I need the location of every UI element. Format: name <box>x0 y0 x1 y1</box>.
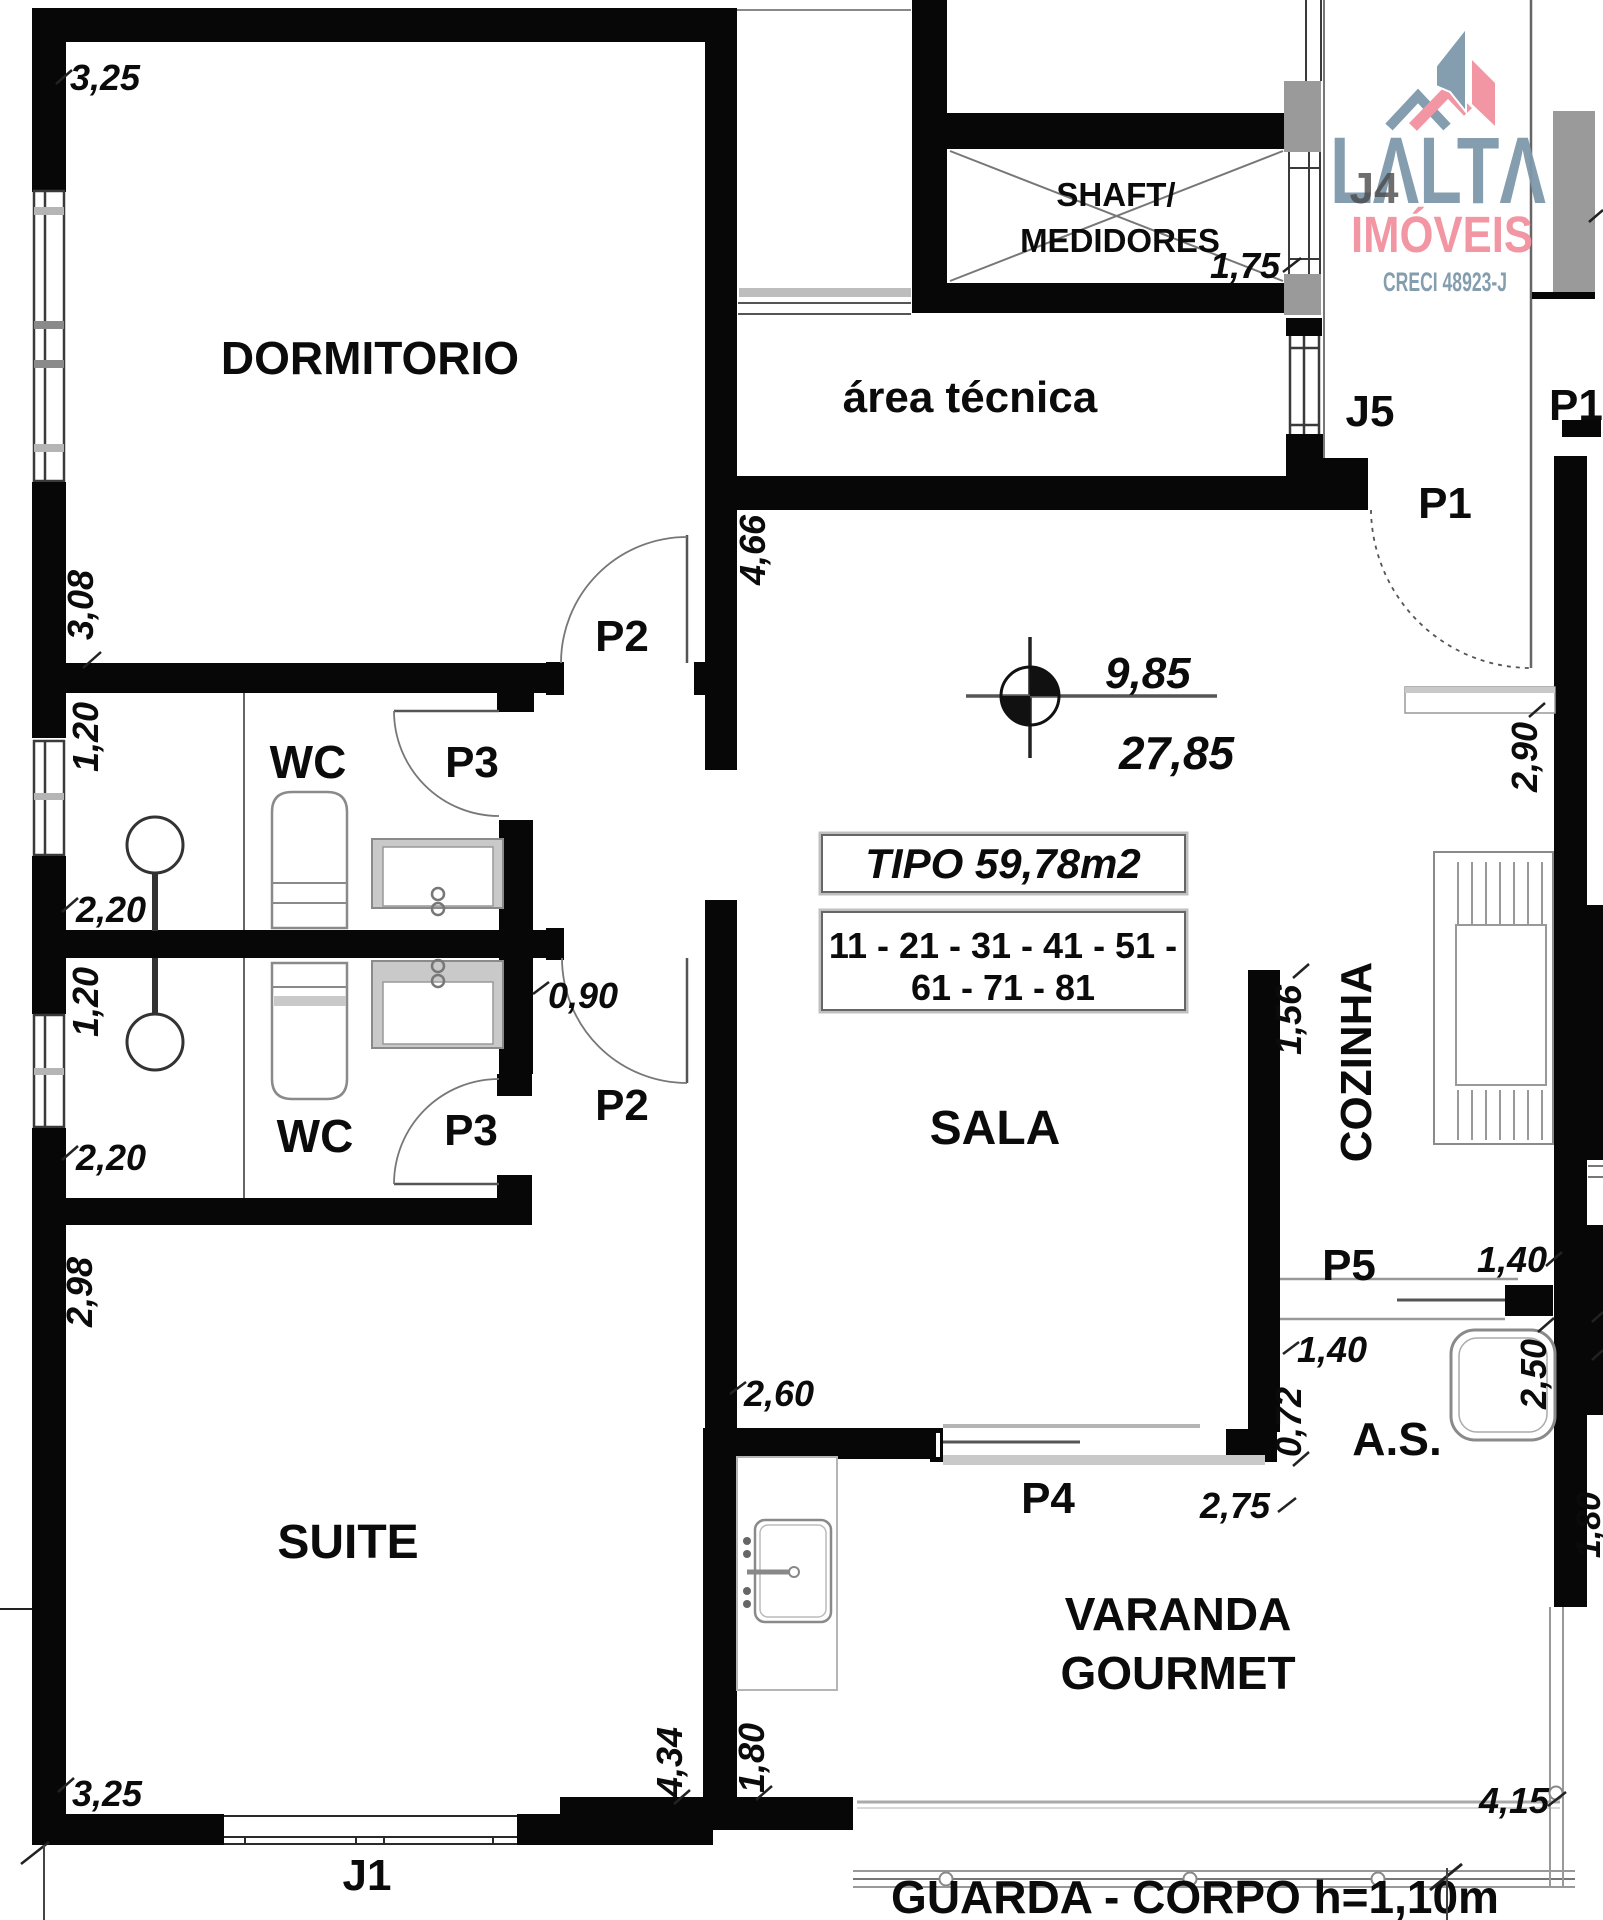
svg-text:WC: WC <box>277 1110 354 1162</box>
svg-text:11 - 21 - 31 - 41 - 51 -: 11 - 21 - 31 - 41 - 51 - <box>829 925 1177 966</box>
svg-text:P3: P3 <box>445 738 499 787</box>
svg-text:1,80: 1,80 <box>731 1723 772 1793</box>
svg-text:MEDIDORES: MEDIDORES <box>1020 222 1220 259</box>
svg-text:CRECI 48923-J: CRECI 48923-J <box>1383 267 1507 297</box>
svg-text:2,20: 2,20 <box>75 889 146 930</box>
svg-text:J4: J4 <box>1350 164 1399 213</box>
svg-text:P4: P4 <box>1021 1474 1075 1523</box>
svg-text:2,90: 2,90 <box>1504 722 1545 793</box>
svg-text:61 - 71 - 81: 61 - 71 - 81 <box>911 967 1095 1008</box>
svg-text:SALA: SALA <box>930 1102 1061 1155</box>
svg-text:3,25: 3,25 <box>72 1773 143 1814</box>
svg-text:P3: P3 <box>444 1106 498 1155</box>
svg-text:SUITE: SUITE <box>277 1516 418 1569</box>
svg-text:P5: P5 <box>1322 1241 1376 1290</box>
svg-text:J5: J5 <box>1346 387 1395 436</box>
svg-text:3,25: 3,25 <box>70 57 141 98</box>
svg-text:1,56: 1,56 <box>1268 984 1309 1055</box>
svg-text:2,20: 2,20 <box>75 1137 146 1178</box>
svg-text:TIPO 59,78m2: TIPO 59,78m2 <box>865 840 1140 887</box>
svg-text:1,20: 1,20 <box>65 967 106 1037</box>
svg-text:WC: WC <box>270 736 347 788</box>
svg-text:2,60: 2,60 <box>743 1373 814 1414</box>
svg-text:DORMITORIO: DORMITORIO <box>221 332 519 384</box>
svg-text:2,98: 2,98 <box>59 1257 100 1328</box>
svg-text:0,90: 0,90 <box>548 975 618 1016</box>
svg-text:VARANDA: VARANDA <box>1065 1588 1292 1640</box>
svg-text:1,40: 1,40 <box>1297 1329 1367 1370</box>
svg-text:GUARDA - CORPO h=1,10m: GUARDA - CORPO h=1,10m <box>891 1871 1499 1920</box>
svg-text:P2: P2 <box>595 612 649 661</box>
svg-text:1,40: 1,40 <box>1477 1239 1547 1280</box>
svg-text:A.S.: A.S. <box>1352 1413 1441 1465</box>
svg-text:9,85: 9,85 <box>1105 649 1191 698</box>
svg-text:P1: P1 <box>1418 479 1472 528</box>
svg-text:4,34: 4,34 <box>649 1727 690 1798</box>
svg-text:P1: P1 <box>1549 381 1603 430</box>
svg-text:SHAFT/: SHAFT/ <box>1056 176 1175 213</box>
svg-text:1,20: 1,20 <box>65 702 106 772</box>
svg-text:4,15: 4,15 <box>1478 1780 1550 1821</box>
svg-text:3,08: 3,08 <box>60 570 101 640</box>
svg-text:área técnica: área técnica <box>843 373 1098 422</box>
svg-text:4,66: 4,66 <box>732 514 773 586</box>
svg-text:27,85: 27,85 <box>1118 727 1236 779</box>
svg-text:1,80: 1,80 <box>1570 1492 1603 1558</box>
svg-text:IMÓVEIS: IMÓVEIS <box>1351 206 1533 263</box>
svg-text:COZINHA: COZINHA <box>1332 962 1381 1162</box>
svg-text:1,75: 1,75 <box>1210 245 1281 286</box>
svg-text:P2: P2 <box>595 1081 649 1130</box>
svg-text:2,75: 2,75 <box>1199 1485 1271 1526</box>
svg-text:0,72: 0,72 <box>1268 1387 1309 1457</box>
svg-text:GOURMET: GOURMET <box>1060 1647 1295 1699</box>
svg-text:J1: J1 <box>343 1851 392 1900</box>
svg-text:2,50: 2,50 <box>1513 1339 1554 1410</box>
